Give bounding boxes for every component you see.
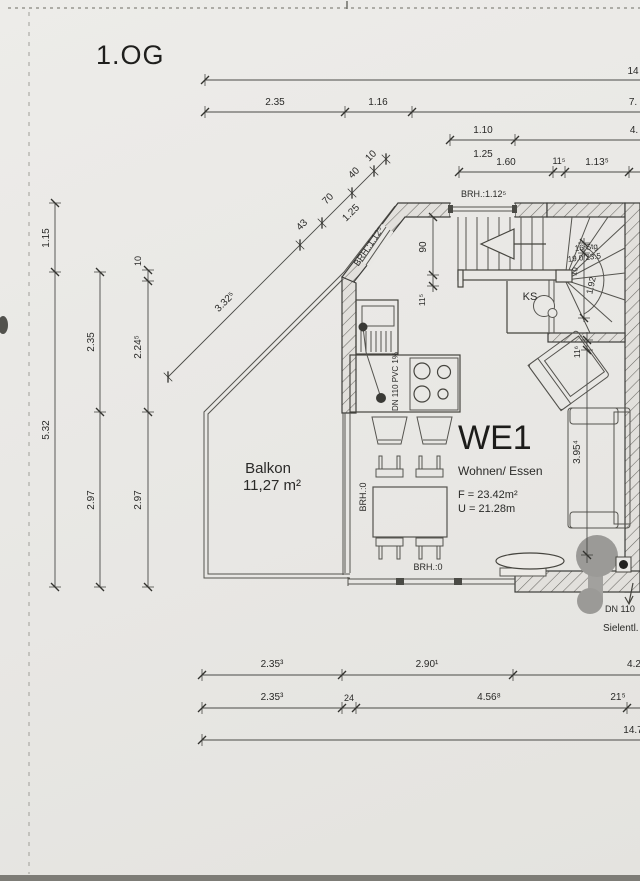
pipe-point <box>376 393 386 403</box>
dim-label: 11⁶ <box>572 346 582 358</box>
wall-stair-top <box>547 203 625 217</box>
dim-label: 7. <box>629 97 637 108</box>
ks-label: KS <box>523 291 538 303</box>
stair-direction-arrow <box>481 229 514 259</box>
dim-label: 5.32 <box>41 420 52 440</box>
dim-label: 1.15 <box>41 228 52 248</box>
dim-label: 40 <box>346 165 362 181</box>
dim-label: 1.16 <box>368 97 388 108</box>
dim-label: 11⁵ <box>417 294 427 306</box>
dim-label: 43 <box>294 217 310 233</box>
chair <box>416 538 443 559</box>
downpipe-circle-small <box>577 588 603 614</box>
room-labels: WE1 Wohnen/ Essen F = 23.42m² U = 21.28m <box>458 419 543 515</box>
unit-label: WE1 <box>458 419 532 457</box>
wall-left <box>342 277 356 413</box>
dim-label: 2.35³ <box>261 692 284 703</box>
dim-label: 2.35³ <box>261 659 284 670</box>
room-area-label: F = 23.42m² <box>458 489 518 501</box>
burner-icon <box>414 363 430 379</box>
dim-label: 2.97 <box>86 490 97 510</box>
sink <box>362 306 394 326</box>
dim-label: 4.2 <box>627 659 640 670</box>
dim-label: 10 <box>133 256 143 266</box>
dim-label: 1.13⁵ <box>585 157 609 168</box>
room-name-label: Wohnen/ Essen <box>458 464 543 478</box>
dimensions-left: 1.15 5.32 2.35 2.97 10 2.24⁵ 2.97 <box>41 199 154 591</box>
dim-label: 1.60 <box>496 157 516 168</box>
wall-pier <box>515 203 547 217</box>
wall-stair-bottom <box>548 333 625 342</box>
pipe-label: DN 110 PVC 1% <box>391 352 400 411</box>
dim-label: 1.10 <box>473 125 493 136</box>
downpipe-circle <box>576 535 618 577</box>
dim-label: 4. <box>630 125 638 136</box>
dim-label: 2.90¹ <box>416 659 439 670</box>
drain-point <box>619 560 628 569</box>
walls <box>342 203 640 592</box>
kitchen: DN 110 PVC 1% <box>350 300 460 412</box>
balcony-area-label: 11,27 m² <box>243 477 301 494</box>
kitchen-counter <box>350 355 460 412</box>
landing-edge <box>458 270 565 280</box>
drain-name-label: Sielentl. <box>603 623 639 634</box>
pipe-point <box>359 323 368 332</box>
sofa <box>568 408 630 528</box>
dim-label: 21⁵ <box>610 692 625 703</box>
chair <box>376 456 403 477</box>
chair <box>416 456 443 477</box>
dim-label: 2.35 <box>86 332 97 352</box>
dim-label: 2.35 <box>265 97 285 108</box>
dining-table <box>373 487 447 537</box>
drain-size-label: DN 110 <box>605 604 635 614</box>
sill-label-top: BRH.:1.12⁵ <box>461 189 507 199</box>
page-title: 1.OG <box>96 40 165 70</box>
dim-label: 1.25 <box>340 202 362 224</box>
staircase: KS 16 Stg 19.0/23.5 <box>458 217 625 333</box>
chair <box>376 538 403 559</box>
stove <box>410 358 458 410</box>
dim-label: 14 <box>627 66 639 77</box>
sill-label-bottom: BRH.:0 <box>413 562 442 572</box>
dim-label: 10 <box>363 148 379 164</box>
dim-label: 14.7 <box>623 725 640 736</box>
room-perimeter-label: U = 21.28m <box>458 503 515 515</box>
sill-label-left: BRH.:0 <box>358 482 368 511</box>
dimensions-top: 14 2.35 1.16 7. 1.10 4. 1.25 1.60 11⁵ 1.… <box>201 66 640 178</box>
balcony-label: Balkon <box>245 460 291 477</box>
dim-label: 70 <box>320 191 336 207</box>
burner-icon <box>438 366 451 379</box>
scanned-floor-plan-page: 1.OG Balkon 11,27 m² <box>0 0 640 881</box>
burner-icon <box>438 389 448 399</box>
dim-label: 1.25 <box>473 149 493 160</box>
floor-plan-svg: 1.OG Balkon 11,27 m² <box>0 0 640 881</box>
dim-label: 2.97 <box>133 490 144 510</box>
dim-label: 2.24⁵ <box>133 335 144 359</box>
dim-label: 90 <box>418 241 429 253</box>
dim-label: 3.95⁴ <box>572 440 583 464</box>
wall-diagonal <box>342 203 450 283</box>
dim-label: 4.56⁸ <box>477 692 501 703</box>
scan-artifacts <box>0 1 640 881</box>
dim-label: 24 <box>344 693 354 703</box>
top-window <box>450 204 515 216</box>
dim-label: 11⁵ <box>552 156 565 166</box>
wall-right <box>625 203 640 592</box>
burner-icon <box>414 386 430 402</box>
dimensions-bottom: 2.35³ 2.90¹ 4.2 2.35³ 24 4.56⁸ 21⁵ 14.7 <box>198 659 640 746</box>
dim-label: 1.92 <box>584 276 597 295</box>
